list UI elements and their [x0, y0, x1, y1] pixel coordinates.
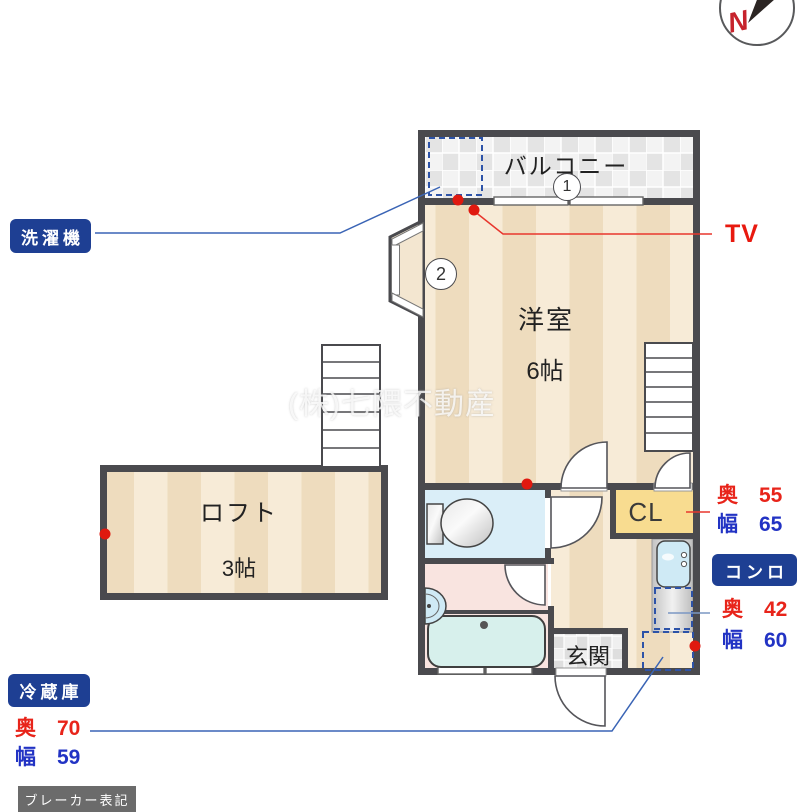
stove-width-value: 60: [764, 629, 798, 653]
washer-tag: 洗濯機: [10, 219, 91, 253]
fridge-depth-row: 奥 70: [15, 712, 91, 742]
stove-depth-label: 奥: [722, 593, 748, 623]
closet-label: CL: [616, 497, 676, 528]
stove-tag: コンロ: [712, 554, 797, 586]
fridge-tag: 冷蔵庫: [8, 674, 90, 707]
stove-width-row: 幅 60: [722, 624, 798, 654]
breaker-tag: ブレーカー表記: [18, 786, 136, 812]
bathtub-icon: [428, 616, 545, 667]
fridge-width-label: 幅: [15, 741, 41, 771]
stove-depth-value: 42: [764, 598, 798, 622]
fridge-depth-label: 奥: [15, 712, 41, 742]
fridge-width-value: 59: [57, 746, 91, 770]
fridge-width-row: 幅 59: [15, 741, 91, 771]
main-room-size: 6帖: [495, 351, 595, 386]
watermark: (株)七隈不動産: [288, 379, 496, 423]
stove-depth-row: 奥 42: [722, 593, 798, 623]
closet-depth-label: 奥: [717, 479, 743, 509]
closet-depth-row: 奥 55: [717, 479, 793, 509]
tv-label: TV: [725, 220, 759, 249]
washer-tag-text: 洗濯機: [21, 224, 84, 249]
balcony-number-badge: 1: [553, 173, 581, 201]
kitchen-sink-icon: [657, 541, 690, 587]
stove-tag-text: コンロ: [725, 558, 788, 583]
loft-size: 3帖: [189, 551, 289, 583]
closet-width-label: 幅: [717, 508, 743, 538]
main-room-label: 洋室: [491, 300, 601, 337]
stove-width-label: 幅: [722, 624, 748, 654]
entrance-label: 玄関: [554, 639, 622, 671]
room-number-badge: 2: [425, 258, 457, 290]
toilet-icon: [427, 499, 493, 547]
fridge-tag-text: 冷蔵庫: [20, 678, 83, 703]
closet-width-value: 65: [759, 513, 793, 537]
loft-label: ロフト: [179, 493, 299, 528]
closet-width-row: 幅 65: [717, 508, 793, 538]
floorplan-canvas: バルコニー 1 2 洋室 6帖 ロフト 3帖 玄関 CL TV 洗濯機 奥 55…: [0, 0, 800, 800]
closet-depth-value: 55: [759, 484, 793, 508]
fridge-depth-value: 70: [57, 717, 91, 741]
